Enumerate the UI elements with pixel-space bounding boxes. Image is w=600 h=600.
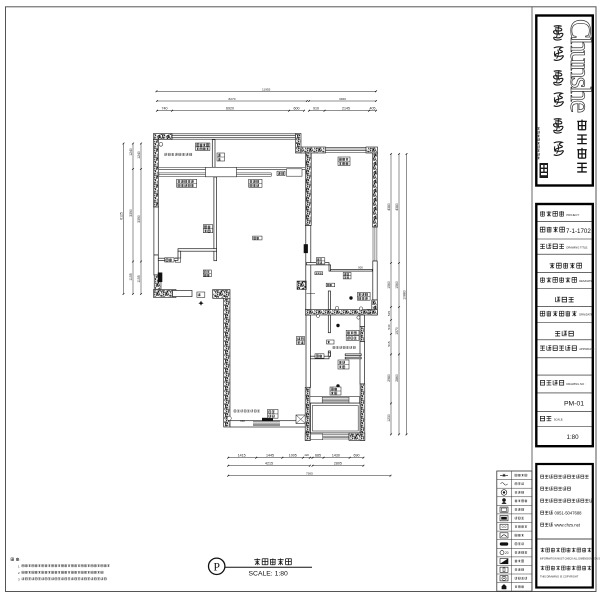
svg-text:1155: 1155	[137, 275, 141, 282]
svg-text:3460: 3460	[339, 97, 346, 101]
svg-text:2145: 2145	[342, 107, 350, 111]
svg-text:2860: 2860	[395, 374, 399, 382]
svg-text:PROJECT:: PROJECT:	[566, 213, 579, 217]
svg-text:1230: 1230	[387, 414, 391, 422]
svg-text:8270: 8270	[229, 97, 236, 101]
svg-text:Chunshe: Chunshe	[564, 19, 597, 113]
svg-text:1005: 1005	[289, 454, 297, 458]
svg-text::: :	[20, 558, 21, 562]
svg-text:0951-5047688: 0951-5047688	[555, 510, 583, 515]
svg-text:APPD/DATE:: APPD/DATE:	[579, 347, 595, 351]
svg-text:10880: 10880	[402, 290, 406, 300]
svg-text:3390: 3390	[137, 215, 141, 223]
svg-text:4380: 4380	[395, 203, 399, 211]
svg-text:SCALE:: SCALE:	[554, 418, 564, 422]
svg-text:1:80: 1:80	[567, 434, 580, 441]
svg-text:4215: 4215	[265, 462, 273, 466]
svg-text:11955: 11955	[262, 87, 271, 91]
svg-text:3390: 3390	[129, 209, 133, 217]
svg-text:6920: 6920	[226, 107, 234, 111]
svg-text:540: 540	[387, 324, 391, 329]
svg-text:0.0: 0.0	[502, 525, 507, 529]
svg-text:1445: 1445	[266, 454, 274, 458]
svg-text:THIS DRAWING IS COPYRIGHT: THIS DRAWING IS COPYRIGHT	[540, 575, 579, 579]
svg-text:PM-01: PM-01	[564, 400, 584, 407]
svg-text:900: 900	[358, 266, 363, 270]
svg-text:2980: 2980	[387, 374, 391, 382]
svg-text:DRN/DATE:: DRN/DATE:	[579, 313, 594, 317]
svg-text:6125: 6125	[119, 212, 123, 220]
svg-text:1430: 1430	[332, 454, 340, 458]
svg-text:INFORMATION MUST CHECK ALL DIM: INFORMATION MUST CHECK ALL DIMENSIONS ON…	[540, 558, 600, 561]
svg-text:1240: 1240	[129, 148, 133, 156]
svg-text:690: 690	[354, 454, 360, 458]
svg-text:1570: 1570	[395, 327, 399, 335]
svg-text:685: 685	[315, 454, 321, 458]
svg-text:350: 350	[240, 419, 245, 423]
svg-text:515: 515	[387, 341, 391, 346]
svg-text:910: 910	[313, 107, 319, 111]
svg-text:1: 1	[18, 564, 20, 568]
svg-text:7-1-1702: 7-1-1702	[566, 228, 591, 235]
svg-text:600: 600	[294, 107, 300, 111]
svg-text:2805: 2805	[334, 462, 342, 466]
svg-text:1240: 1240	[137, 151, 141, 159]
svg-text:20: 20	[505, 551, 509, 555]
svg-text:2: 2	[18, 571, 20, 575]
svg-text:DRAWING TITLE:: DRAWING TITLE:	[566, 245, 588, 249]
svg-text:www.chzs.net: www.chzs.net	[555, 522, 581, 527]
svg-text:1155: 1155	[129, 273, 133, 280]
svg-text:7365: 7365	[306, 472, 313, 476]
svg-text:405: 405	[370, 107, 376, 111]
svg-text:515: 515	[387, 311, 391, 316]
svg-text:1560: 1560	[395, 281, 399, 289]
svg-text:1415: 1415	[238, 454, 246, 458]
svg-text:740: 740	[162, 107, 168, 111]
svg-text:DES/DATE:: DES/DATE:	[579, 279, 593, 283]
svg-text:P: P	[213, 562, 219, 574]
svg-text:420: 420	[304, 453, 309, 457]
svg-text:3: 3	[18, 578, 20, 582]
svg-text:1560: 1560	[387, 281, 391, 289]
svg-text:4380: 4380	[387, 203, 391, 211]
svg-text:SCALE: 1:80: SCALE: 1:80	[249, 571, 289, 578]
svg-text:DRAWING NO :: DRAWING NO :	[566, 382, 585, 386]
